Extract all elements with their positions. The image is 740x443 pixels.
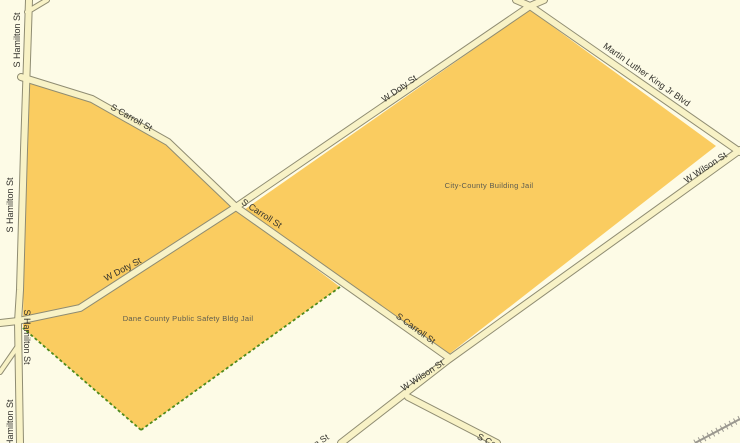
place-label-9: Dane County Public Safety Bldg Jail [123,314,254,323]
street-label-10: S Hamilton St [22,309,32,365]
place-label-4: City-County Building Jail [445,181,534,190]
street-label-0: S Hamilton St [12,12,22,68]
map-canvas[interactable]: S Hamilton StS Carroll StW Doty StMartin… [0,0,740,443]
street-label-15: S Hamilton St [5,399,15,443]
map-viewer: S Hamilton StS Carroll StW Doty StMartin… [0,0,740,443]
street-label-5: S Hamilton St [5,177,15,233]
